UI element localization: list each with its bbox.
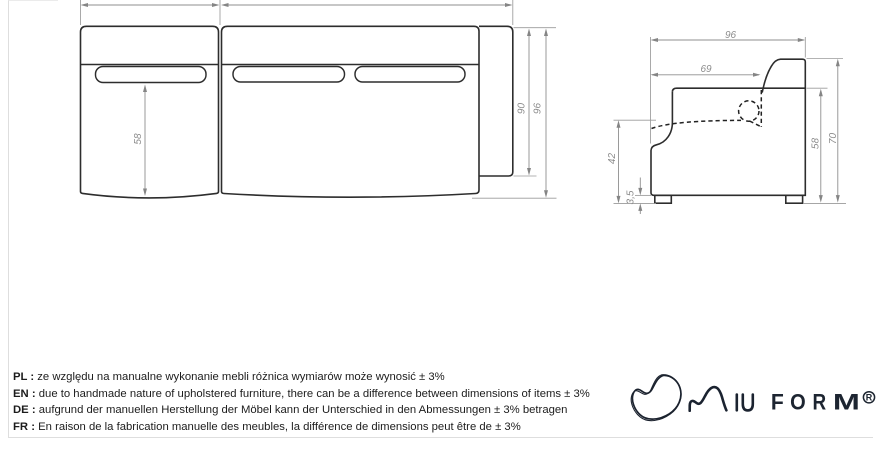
svg-text:96: 96 xyxy=(725,30,737,41)
svg-text:42: 42 xyxy=(607,153,618,165)
svg-text:F: F xyxy=(771,389,784,415)
svg-text:70: 70 xyxy=(828,133,839,145)
svg-text:96: 96 xyxy=(533,103,544,115)
svg-text:R: R xyxy=(813,390,827,415)
svg-text:58: 58 xyxy=(811,138,822,150)
svg-text:R: R xyxy=(866,393,873,403)
svg-text:3,5: 3,5 xyxy=(626,190,637,204)
svg-text:58: 58 xyxy=(133,133,144,145)
svg-text:69: 69 xyxy=(700,64,712,75)
svg-text:90: 90 xyxy=(517,103,528,115)
svg-text:M: M xyxy=(833,389,860,414)
svg-text:O: O xyxy=(790,389,806,414)
